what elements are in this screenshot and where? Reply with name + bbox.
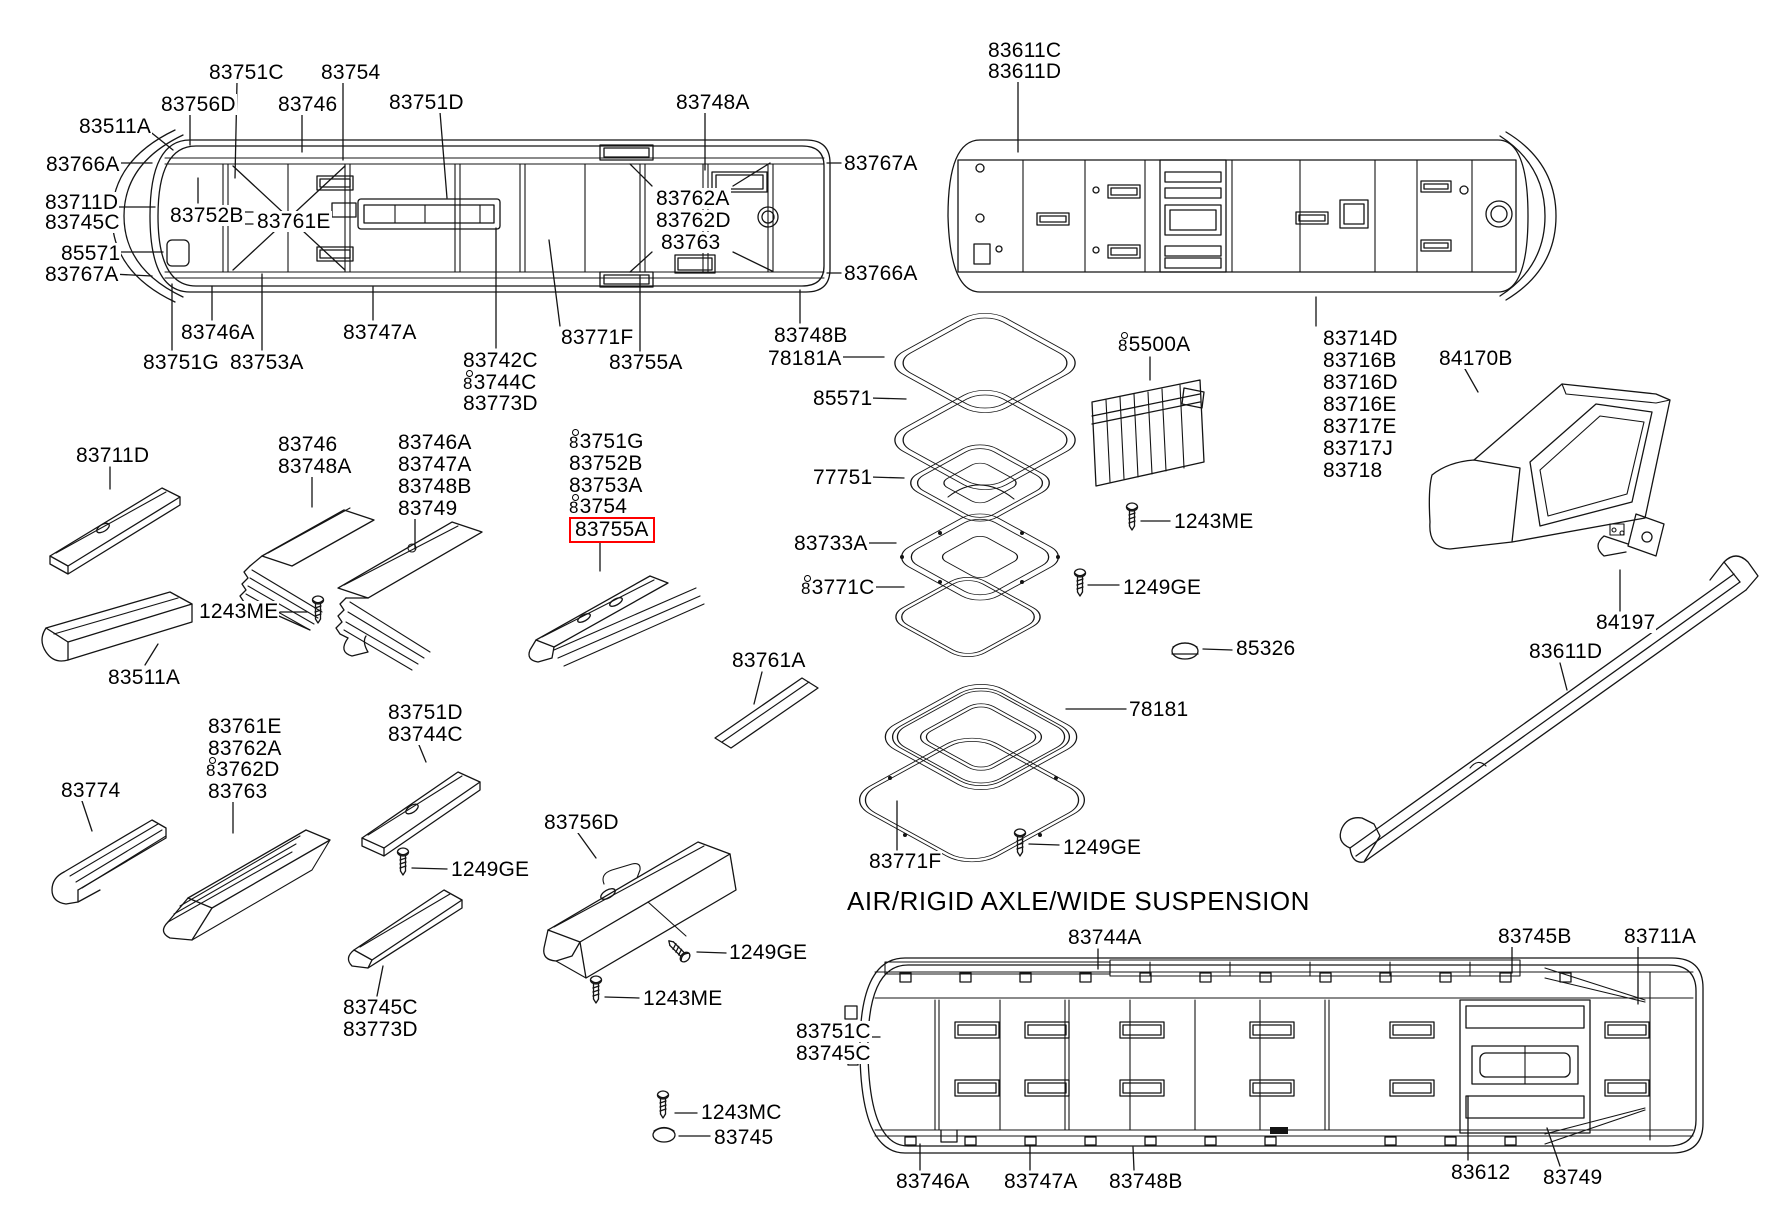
part-label-83746A-19: 83746A xyxy=(180,322,256,343)
screw-1249GE-icon xyxy=(665,937,692,964)
part-label-83771F-50: 83771F xyxy=(868,851,942,872)
part-label-85571-40: 85571 xyxy=(812,388,873,409)
part-label-83767A-13: 83767A xyxy=(44,264,120,285)
part-label-83611D-92: 83611D xyxy=(1528,641,1603,662)
section-title: AIR/RIGID AXLE/WIDE SUSPENSION xyxy=(847,886,1310,917)
part-label-83745B-84: 83745B xyxy=(1497,926,1573,947)
roof-panel-top-right-drawing xyxy=(948,132,1556,300)
part-label-83748B-88: 83748B xyxy=(1108,1171,1184,1192)
part-label-83511A-6: 83511A xyxy=(78,116,152,137)
part-label-83755A-28: 83755A xyxy=(608,352,684,373)
part-label-83753A-24: 83753A xyxy=(229,352,305,373)
sunroof-gasket-83771C-drawing xyxy=(886,572,1050,662)
rail-83746A-83749-drawing xyxy=(336,522,482,670)
part-label-83751G-23: 83751G xyxy=(142,352,220,373)
part-label-83766A-15: 83766A xyxy=(843,263,919,284)
part-label-83746-3: 83746 xyxy=(277,94,338,115)
part-label-83751C-81: 83751C xyxy=(795,1021,872,1042)
part-label-83716E-34: 83716E xyxy=(1322,394,1398,415)
screw-1243ME-icon xyxy=(1127,503,1138,530)
part-label-83761E-11: 83761E xyxy=(256,211,332,232)
cap-83745-icon xyxy=(653,1128,675,1143)
part-label-83751D-4: 83751D xyxy=(388,92,465,113)
part-label-83774-66: 83774 xyxy=(60,780,121,801)
part-label-1249GE-73: 1249GE xyxy=(450,859,530,880)
part-label-83754-1: 83754 xyxy=(320,62,381,83)
part-label-83748B-59: 83748B xyxy=(397,476,473,497)
part-label-83751G-61: 83751G xyxy=(568,431,645,452)
sunroof-glass-77751-drawing xyxy=(901,439,1059,526)
part-label-83762D-17: 83762D xyxy=(655,210,732,231)
part-label-83773D-75: 83773D xyxy=(342,1019,419,1040)
roof-panel-bottom-drawing xyxy=(845,958,1703,1153)
part-label-85326-47: 85326 xyxy=(1235,638,1296,659)
part-label-83746-54: 83746 xyxy=(277,434,338,455)
part-label-83753A-63: 83753A xyxy=(568,475,644,496)
part-label-83611D-30: 83611D xyxy=(987,61,1062,82)
plug-85326-drawing xyxy=(1172,643,1198,659)
part-label-83716D-33: 83716D xyxy=(1322,372,1399,393)
channel-83774-drawing xyxy=(52,820,166,904)
part-label-83767A-14: 83767A xyxy=(843,153,919,174)
part-label-83771C-43: 83771C xyxy=(800,577,876,598)
part-label-1243ME-56: 1243ME xyxy=(198,601,279,622)
part-label-85500A-45: 85500A xyxy=(1117,334,1191,355)
part-label-83754-64: 83754 xyxy=(568,496,628,517)
part-label-83748B-22: 83748B xyxy=(773,325,849,346)
part-label-83711D-52: 83711D xyxy=(75,445,150,466)
channel-83511A-drawing xyxy=(42,592,192,661)
part-label-83762D-69: 83762D xyxy=(205,759,281,780)
part-label-83742C-25: 83742C xyxy=(462,350,539,371)
part-label-78181-48: 78181 xyxy=(1128,699,1189,720)
part-label-83717E-35: 83717E xyxy=(1322,416,1398,437)
screw-1249GE-icon xyxy=(1075,569,1086,596)
part-label-83745C-82: 83745C xyxy=(795,1043,872,1064)
part-label-83747A-20: 83747A xyxy=(342,322,418,343)
part-label-83747A-58: 83747A xyxy=(397,454,473,475)
part-label-83744C-26: 83744C xyxy=(462,372,538,393)
sunroof-seal-85571-drawing xyxy=(882,384,1087,497)
highlight-box: 83755A xyxy=(569,517,655,543)
part-label-83763-18: 83763 xyxy=(660,232,721,253)
part-label-83749-90: 83749 xyxy=(1542,1167,1603,1188)
rail-83755A-drawing xyxy=(529,576,704,666)
part-label-83751C-0: 83751C xyxy=(208,62,285,83)
part-label-83756D-76: 83756D xyxy=(543,812,620,833)
part-label-1243ME-77: 1243ME xyxy=(642,988,723,1009)
sunroof-seal-78181A-drawing xyxy=(882,307,1087,420)
part-label-1243MC-79: 1243MC xyxy=(700,1102,783,1123)
part-label-84197-91: 84197 xyxy=(1595,612,1656,633)
part-label-83744C-72: 83744C xyxy=(387,724,464,745)
part-label-83746A-57: 83746A xyxy=(397,432,473,453)
note-ring8-icon: 8 xyxy=(569,499,579,516)
parts-diagram-page: AIR/RIGID AXLE/WIDE SUSPENSION 83751C837… xyxy=(0,0,1772,1211)
part-label-1249GE-78: 1249GE xyxy=(728,942,808,963)
screw-1243ME-icon xyxy=(591,976,602,1003)
rail-83751D-83744C-drawing xyxy=(362,772,480,856)
part-label-83748A-5: 83748A xyxy=(675,92,751,113)
part-label-78181A-39: 78181A xyxy=(767,348,843,369)
part-label-83766A-7: 83766A xyxy=(45,154,121,175)
part-label-83716B-32: 83716B xyxy=(1322,350,1398,371)
part-label-1249GE-49: 1249GE xyxy=(1062,837,1142,858)
part-label-83612-89: 83612 xyxy=(1450,1162,1511,1183)
part-label-83773D-27: 83773D xyxy=(462,393,539,414)
rail-83756D-drawing xyxy=(544,842,736,978)
part-label-83733A-42: 83733A xyxy=(793,533,869,554)
part-label-83611C-29: 83611C xyxy=(987,40,1062,61)
note-ring8-icon: 8 xyxy=(569,434,579,451)
screw-1249GE-icon xyxy=(398,848,409,875)
part-label-83744A-83: 83744A xyxy=(1067,927,1143,948)
part-label-83717J-36: 83717J xyxy=(1322,438,1394,459)
part-label-83756D-2: 83756D xyxy=(160,94,237,115)
part-label-83762A-16: 83762A xyxy=(655,188,731,209)
part-label-83761E-67: 83761E xyxy=(207,716,283,737)
note-ring8-icon: 8 xyxy=(463,375,473,392)
part-label-77751-41: 77751 xyxy=(812,467,873,488)
bottom-panel-clips xyxy=(900,973,1571,1145)
part-label-83748A-55: 83748A xyxy=(277,456,353,477)
part-label-83752B-62: 83752B xyxy=(568,453,644,474)
strip-83611D-drawing xyxy=(1340,556,1758,862)
part-label-83763-70: 83763 xyxy=(207,781,268,802)
part-label-1249GE-44: 1249GE xyxy=(1122,577,1202,598)
part-label-83751D-71: 83751D xyxy=(387,702,464,723)
part-label-83745C-74: 83745C xyxy=(342,997,419,1018)
strip-83761A-drawing xyxy=(715,678,818,748)
part-label-1243ME-46: 1243ME xyxy=(1173,511,1254,532)
part-label-83771F-21: 83771F xyxy=(560,327,634,348)
leader-lines xyxy=(82,82,1638,1170)
rail-83761E-83763-drawing xyxy=(163,830,330,940)
note-ring8-icon: 8 xyxy=(1118,337,1128,354)
note-ring8-icon: 8 xyxy=(206,762,216,779)
sunroof-frame-83733A-drawing xyxy=(891,508,1069,606)
part-label-83747A-87: 83747A xyxy=(1003,1171,1079,1192)
part-label-83714D-31: 83714D xyxy=(1322,328,1399,349)
part-label-83745-80: 83745 xyxy=(713,1127,774,1148)
part-label-83745C-9: 83745C xyxy=(44,212,121,233)
part-label-83511A-53: 83511A xyxy=(107,667,181,688)
sunshade-85500A-drawing xyxy=(1092,380,1204,486)
rail-83711D-drawing xyxy=(50,488,180,574)
note-ring8-icon: 8 xyxy=(801,580,811,597)
part-label-83711A-85: 83711A xyxy=(1623,926,1697,947)
part-label-83755A-65: 83755A xyxy=(568,517,656,543)
part-label-83749-60: 83749 xyxy=(397,498,458,519)
screw-1243MC-icon xyxy=(658,1091,669,1118)
part-label-83762A-68: 83762A xyxy=(207,738,283,759)
part-label-84170B-38: 84170B xyxy=(1438,348,1514,369)
part-label-83718-37: 83718 xyxy=(1322,460,1383,481)
bottom-panel-slots xyxy=(955,1022,1649,1096)
screw-1249GE-icon xyxy=(1015,829,1026,856)
part-label-83752B-10: 83752B xyxy=(169,205,245,226)
part-label-83761A-51: 83761A xyxy=(731,650,807,671)
channel-83745C-83773D-drawing xyxy=(348,890,462,968)
part-label-83746A-86: 83746A xyxy=(895,1171,971,1192)
part-label-85571-12: 85571 xyxy=(60,243,121,264)
